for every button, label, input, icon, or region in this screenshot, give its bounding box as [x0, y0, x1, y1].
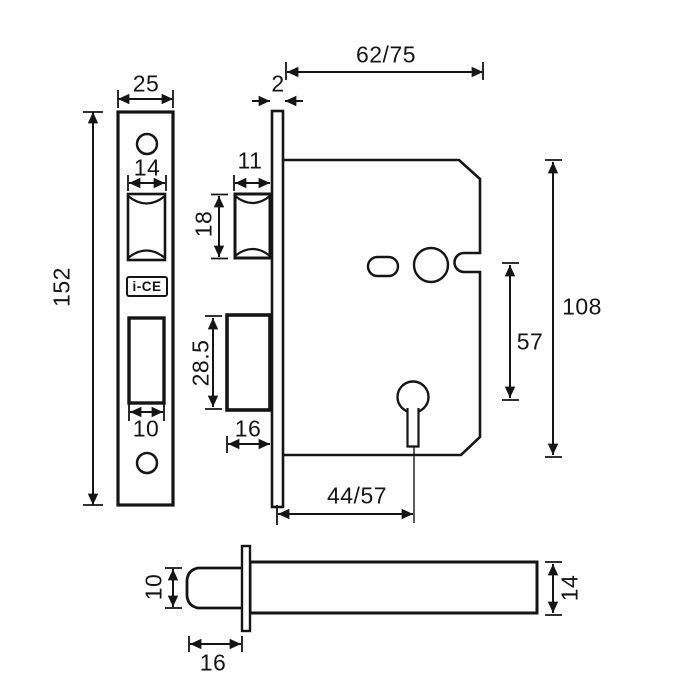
fixing-slot — [368, 257, 398, 276]
dim-label-case-depth: 62/75 — [356, 44, 416, 67]
dim-label-case-height: 108 — [562, 296, 602, 319]
dim-label-bolt-throw: 16 — [200, 652, 227, 675]
keyhole-stem — [408, 408, 419, 447]
latch-bevel-top-arc — [128, 196, 165, 204]
latch-bolt-top-arc — [235, 196, 270, 203]
lock-case-outline — [283, 160, 480, 455]
bolt-bottom-view — [187, 546, 537, 631]
dim-label-deadbolt-cutout-width: 10 — [133, 418, 160, 441]
dim-label-spindle-to-keyhole: 57 — [517, 331, 544, 354]
dim-label-bolt-diameter: 10 — [143, 574, 166, 601]
dead-bolt — [227, 315, 270, 410]
bolt-nose — [187, 568, 242, 608]
dim-label-backset: 44/57 — [327, 485, 387, 508]
screw-hole-top — [137, 134, 157, 154]
bolts-side-view — [227, 194, 270, 410]
faceplate-dimensions — [83, 90, 173, 505]
faceplate-edge-view — [272, 111, 283, 507]
dim-label-deadbolt-height: 28.5 — [190, 340, 213, 387]
brand-logo-text: i-CE — [133, 279, 162, 294]
dim-label-case-thickness: 14 — [559, 575, 582, 602]
spindle-hole — [414, 248, 448, 282]
dim-label-faceplate-height: 152 — [51, 267, 74, 307]
dim-label-latch-cutout-width: 14 — [134, 157, 161, 180]
dim-label-faceplate-thickness: 2 — [271, 73, 284, 96]
dim-label-deadbolt-width: 16 — [235, 418, 262, 441]
dim-label-faceplate-width: 25 — [133, 73, 160, 96]
keyhole-circle — [398, 382, 429, 413]
brand-logo: i-CE — [126, 276, 168, 297]
dim-label-latch-width: 11 — [238, 150, 263, 173]
dim-label-latch-height: 18 — [193, 211, 216, 238]
lock-case-view — [272, 111, 480, 523]
latch-bolt-bottom-arc — [235, 249, 270, 256]
case-edge — [250, 562, 537, 613]
deadbolt-cutout — [129, 318, 164, 403]
technical-drawing: 62/75 2 25 152 14 11 18 28.5 10 16 108 5… — [0, 0, 700, 700]
faceplate-edge — [242, 546, 250, 631]
latch-bevel-bottom-arc — [128, 251, 165, 259]
screw-hole-bottom — [137, 453, 157, 473]
drawing-linework — [0, 0, 700, 700]
